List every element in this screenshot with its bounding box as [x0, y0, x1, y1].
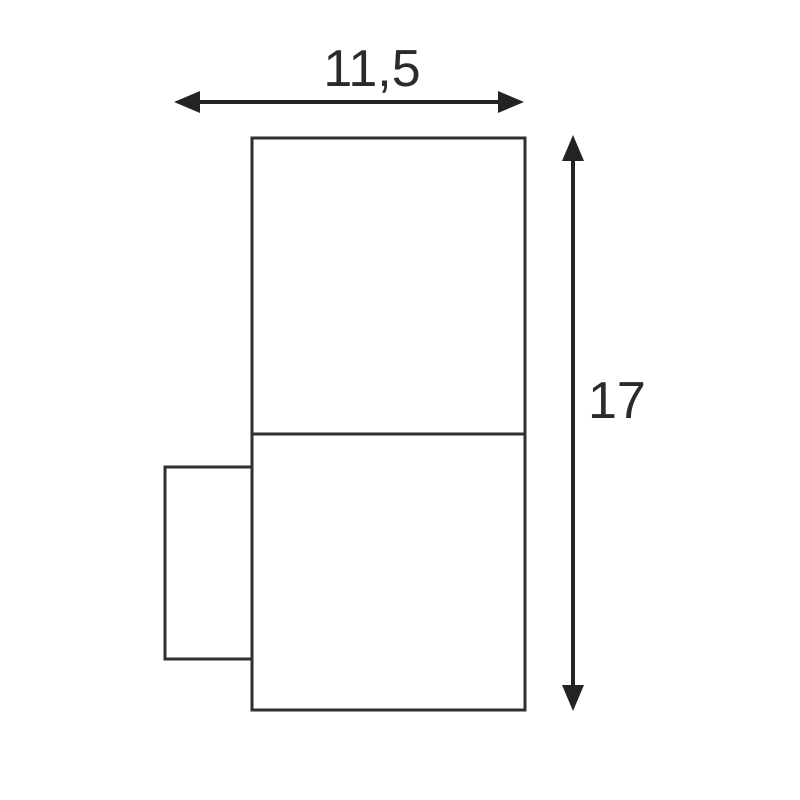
- height-dimension-label: 17: [588, 372, 646, 430]
- arrowhead-up-icon: [562, 135, 584, 161]
- arrowhead-down-icon: [562, 685, 584, 711]
- lamp-body-outline: [252, 138, 525, 710]
- arrowhead-left-icon: [174, 91, 200, 113]
- drawing-canvas: 11,5 17: [0, 0, 800, 800]
- dimension-drawing: 11,5 17: [0, 0, 800, 800]
- height-dimension-arrow: [562, 135, 584, 711]
- arrowhead-right-icon: [498, 91, 524, 113]
- wall-bracket-outline: [165, 467, 252, 659]
- width-dimension-label: 11,5: [323, 40, 420, 98]
